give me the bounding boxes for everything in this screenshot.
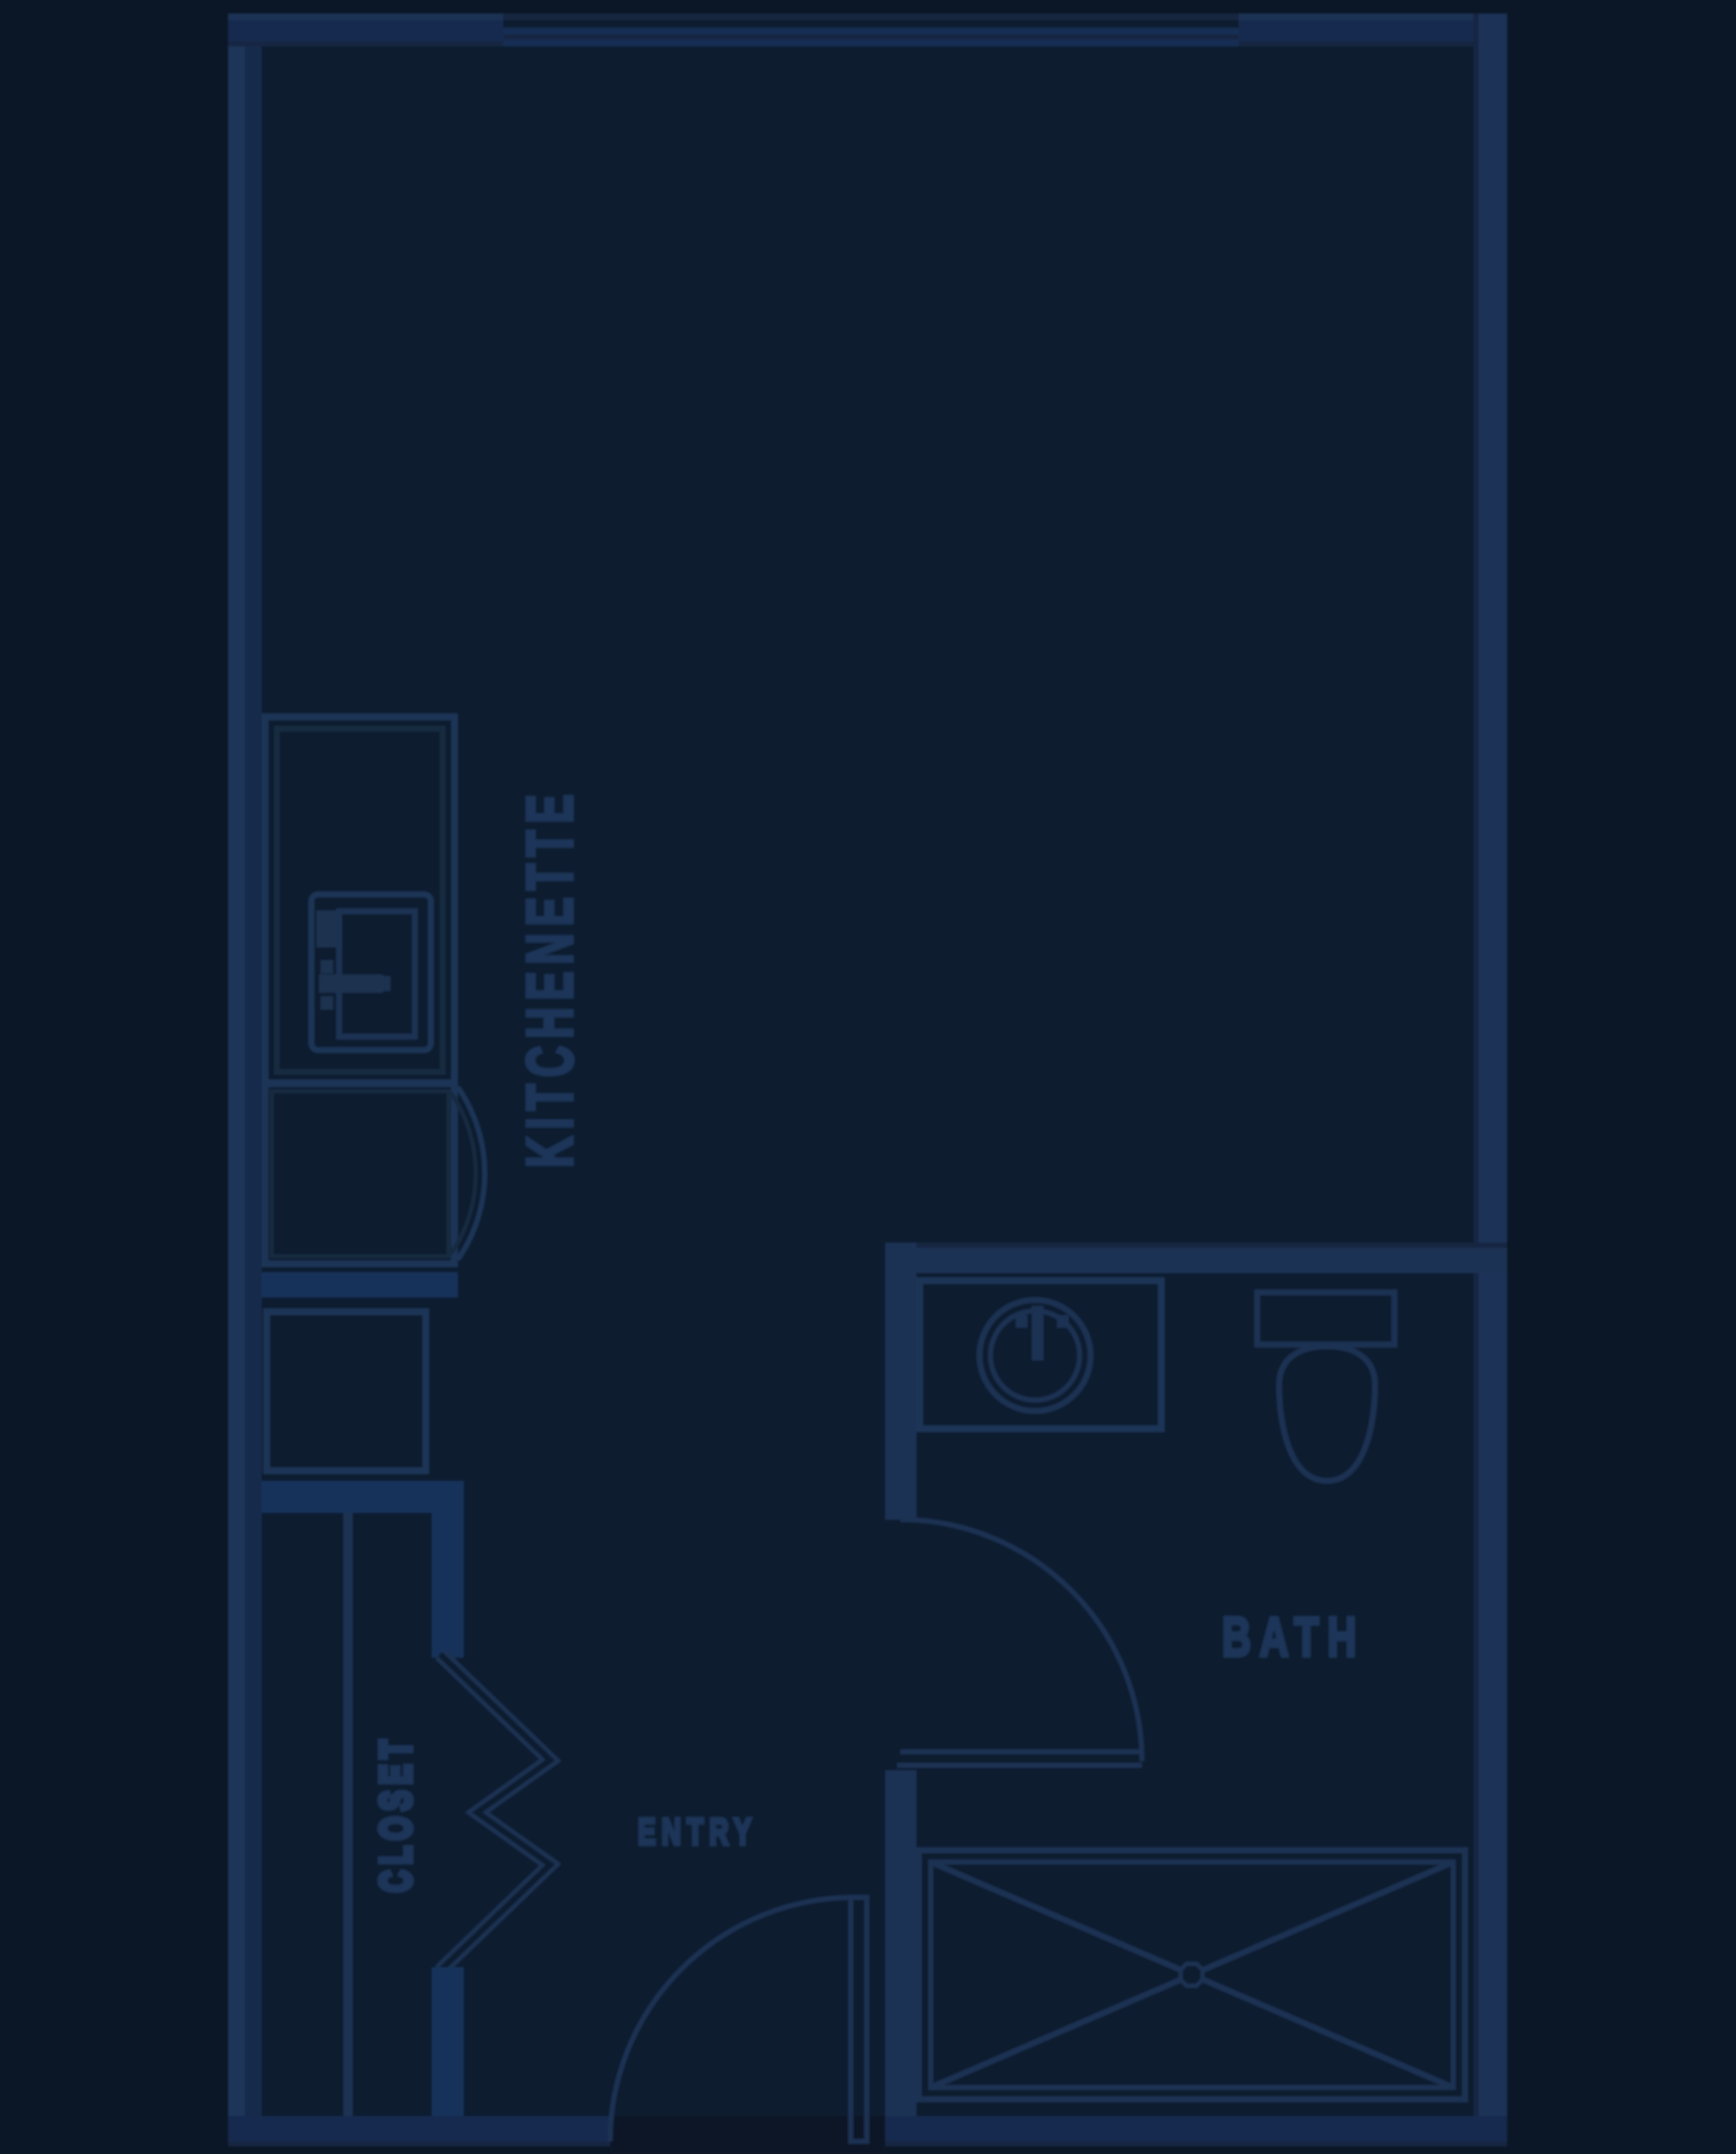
svg-text:BATH: BATH bbox=[1222, 1607, 1365, 1669]
svg-text:CLOSET: CLOSET bbox=[370, 1734, 420, 1892]
svg-text:KITCHENETTE: KITCHENETTE bbox=[514, 788, 587, 1168]
svg-text:ENTRY: ENTRY bbox=[638, 1812, 757, 1853]
